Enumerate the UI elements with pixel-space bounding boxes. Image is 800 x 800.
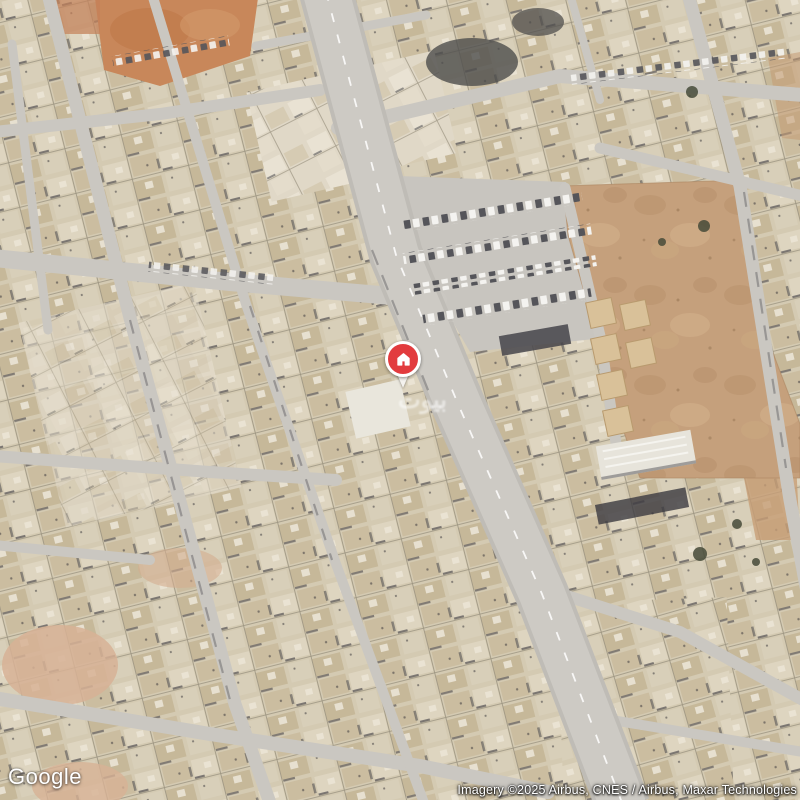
house-icon	[394, 350, 413, 369]
marker-circle	[385, 341, 421, 377]
property-marker[interactable]	[384, 341, 422, 395]
google-logo[interactable]: Google	[8, 764, 82, 790]
map-viewport[interactable]: بيوت Google Imagery ©2025 Airbus, CNES /…	[0, 0, 800, 800]
satellite-imagery	[0, 0, 800, 800]
imagery-attribution: Imagery ©2025 Airbus, CNES / Airbus, Max…	[457, 783, 797, 797]
